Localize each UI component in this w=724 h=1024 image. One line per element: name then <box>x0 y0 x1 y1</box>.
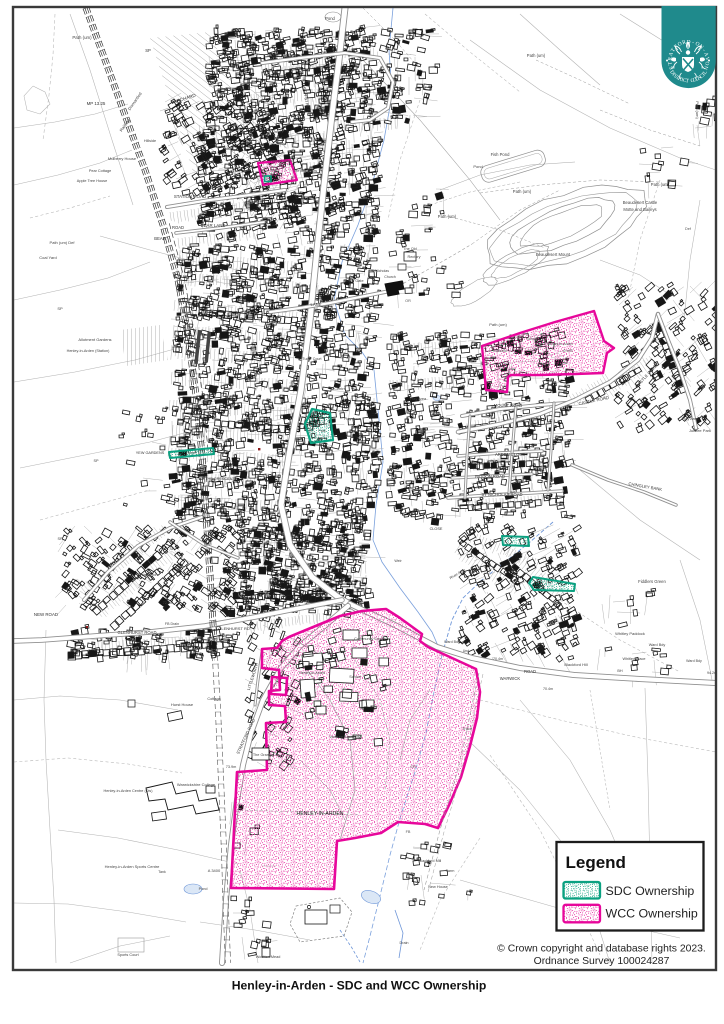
svg-text:SP: SP <box>145 48 151 53</box>
svg-text:Centre: Centre <box>334 387 345 391</box>
svg-text:Play Area: Play Area <box>681 416 699 421</box>
svg-text:Pond: Pond <box>199 887 208 891</box>
svg-text:ST NICHOLAS ROAD: ST NICHOLAS ROAD <box>481 492 522 497</box>
svg-text:BEAR LANE: BEAR LANE <box>201 223 226 228</box>
svg-text:Henley-in-Arden: Henley-in-Arden <box>547 342 572 346</box>
svg-text:A 3400: A 3400 <box>208 868 221 873</box>
svg-text:School: School <box>526 337 538 341</box>
svg-text:FB: FB <box>406 830 411 834</box>
svg-text:Whitley Place: Whitley Place <box>622 657 645 661</box>
svg-text:Ward Bdy: Ward Bdy <box>686 659 702 663</box>
svg-text:Path (um) Def: Path (um) Def <box>50 240 76 245</box>
svg-text:Cottage: Cottage <box>207 697 220 701</box>
svg-text:ROAD: ROAD <box>172 225 184 230</box>
svg-text:© Crown copyright and databas: © Crown copyright and database rights 20… <box>497 944 706 955</box>
svg-text:Legend: Legend <box>566 853 626 872</box>
svg-text:Community Centre: Community Centre <box>354 637 386 641</box>
svg-text:Track: Track <box>462 726 472 731</box>
svg-text:Park: Park <box>318 429 326 433</box>
svg-text:Def: Def <box>307 241 314 245</box>
svg-text:Farm: Farm <box>446 869 455 873</box>
svg-text:NEW ROAD: NEW ROAD <box>34 612 58 617</box>
svg-text:1.22m FF: 1.22m FF <box>268 130 285 134</box>
svg-text:70.4m: 70.4m <box>543 687 553 691</box>
svg-text:73.9m: 73.9m <box>226 765 237 769</box>
svg-text:Path (um): Path (um) <box>438 214 457 219</box>
svg-text:Blackford Mill: Blackford Mill <box>419 859 442 863</box>
svg-text:BH: BH <box>617 669 623 673</box>
svg-text:Jubilee Park: Jubilee Park <box>689 428 711 433</box>
svg-text:SP: SP <box>57 306 63 311</box>
svg-text:STATION ROAD: STATION ROAD <box>174 194 206 199</box>
svg-text:SP: SP <box>57 537 63 541</box>
svg-text:The Bungalow: The Bungalow <box>293 169 318 173</box>
svg-text:CR: CR <box>410 764 416 769</box>
svg-text:Primary School: Primary School <box>270 159 295 163</box>
svg-text:Allotment Gardens: Allotment Gardens <box>78 337 111 342</box>
svg-text:Drain: Drain <box>399 941 408 945</box>
svg-text:Wootton Mead: Wootton Mead <box>256 955 281 959</box>
svg-text:Play Area: Play Area <box>410 397 427 401</box>
svg-text:Play Area: Play Area <box>344 417 361 421</box>
svg-text:Path (um): Path (um) <box>695 101 700 119</box>
svg-text:Church: Church <box>384 275 396 279</box>
svg-text:GLENHURST RD: GLENHURST RD <box>218 626 250 631</box>
svg-text:ROSE AVENUE: ROSE AVENUE <box>267 53 298 58</box>
svg-text:Lych Gate: Lych Gate <box>346 279 363 283</box>
svg-text:Motte and Baileys: Motte and Baileys <box>623 207 656 212</box>
svg-text:Fish Pond: Fish Pond <box>491 152 511 157</box>
svg-text:Brook End: Brook End <box>138 572 157 577</box>
svg-text:THE CRESCENT: THE CRESCENT <box>205 477 235 481</box>
svg-text:Tank: Tank <box>158 870 166 874</box>
svg-text:Beaudesert Mount: Beaudesert Mount <box>536 252 571 257</box>
svg-text:Henley-in-Arden - SDC and WCC: Henley-in-Arden - SDC and WCC Ownership <box>232 979 487 993</box>
svg-text:Blackford Hill: Blackford Hill <box>564 662 587 667</box>
svg-text:WARWICK: WARWICK <box>500 676 521 681</box>
svg-text:LANE: LANE <box>311 302 322 307</box>
svg-text:OR: OR <box>405 299 411 303</box>
svg-text:70.4m: 70.4m <box>493 657 503 661</box>
svg-text:RIDDON ROAD: RIDDON ROAD <box>475 474 505 479</box>
svg-text:Car: Car <box>321 422 328 426</box>
svg-text:Henley-in-Arden: Henley-in-Arden <box>299 671 325 675</box>
svg-text:WCC Ownership: WCC Ownership <box>606 907 698 921</box>
svg-text:MOUNT ROAD: MOUNT ROAD <box>494 403 523 408</box>
svg-text:Warwickshire College: Warwickshire College <box>177 782 216 787</box>
svg-text:Def: Def <box>685 227 692 231</box>
svg-text:SP: SP <box>169 547 175 551</box>
svg-text:BEAR: BEAR <box>154 236 165 241</box>
svg-text:Ordnance Survey 100024287: Ordnance Survey 100024287 <box>534 956 670 967</box>
svg-text:Hillside: Hillside <box>144 139 156 143</box>
svg-text:Henley-in-Arden (Station): Henley-in-Arden (Station) <box>67 349 111 353</box>
svg-text:Tudor Court: Tudor Court <box>302 357 321 361</box>
svg-text:Beaudesert Castle: Beaudesert Castle <box>623 200 658 205</box>
svg-text:School: School <box>349 675 361 679</box>
svg-text:Apple Tree House: Apple Tree House <box>77 179 107 183</box>
svg-text:Venture Academy: Venture Academy <box>329 734 360 739</box>
svg-text:Path (um): Path (um) <box>489 322 507 327</box>
svg-text:Henley-in-Arden Centre (Dis): Henley-in-Arden Centre (Dis) <box>104 789 154 793</box>
svg-text:Weir: Weir <box>394 559 402 563</box>
svg-text:CLOSE: CLOSE <box>430 527 443 531</box>
svg-text:Path (um): Path (um) <box>651 182 670 187</box>
svg-text:Mulberry House: Mulberry House <box>108 156 137 161</box>
svg-text:Fiddlers Green: Fiddlers Green <box>638 579 666 584</box>
svg-text:St Nicholas: St Nicholas <box>371 269 389 273</box>
svg-text:The Grange: The Grange <box>253 753 273 757</box>
svg-text:Path (um): Path (um) <box>72 35 92 40</box>
svg-text:Rectory: Rectory <box>407 255 420 259</box>
svg-text:Ward Bdy: Ward Bdy <box>444 640 460 644</box>
svg-text:Pond: Pond <box>325 16 335 21</box>
svg-text:Whitley Paddock: Whitley Paddock <box>615 631 645 636</box>
svg-text:Path (um): Path (um) <box>527 53 546 58</box>
svg-text:SDC Ownership: SDC Ownership <box>606 884 695 898</box>
svg-text:SP: SP <box>93 459 99 463</box>
svg-text:Sports Court: Sports Court <box>117 953 139 957</box>
svg-text:The Old: The Old <box>403 247 417 251</box>
svg-text:Hurst House: Hurst House <box>171 702 194 707</box>
svg-text:New House: New House <box>428 885 448 889</box>
svg-text:YEW GARDENS: YEW GARDENS <box>136 451 165 455</box>
svg-text:C of E: C of E <box>563 349 573 353</box>
svg-text:Und: Und <box>463 649 470 653</box>
svg-text:HENLEY-IN-ARDEN: HENLEY-IN-ARDEN <box>296 811 343 817</box>
svg-text:ARDEN CLOSE: ARDEN CLOSE <box>495 452 525 457</box>
svg-text:Pond: Pond <box>336 409 344 413</box>
svg-text:GLENHURST ROAD: GLENHURST ROAD <box>117 630 156 635</box>
svg-text:Coal Yard: Coal Yard <box>39 255 56 260</box>
svg-text:Path (um): Path (um) <box>513 189 532 194</box>
svg-text:Henley-in-Arden Sports Centre: Henley-in-Arden Sports Centre <box>105 864 160 869</box>
svg-text:72.6m: 72.6m <box>163 601 174 605</box>
svg-text:ROAD: ROAD <box>524 669 536 674</box>
svg-text:Pond: Pond <box>473 164 482 169</box>
svg-text:MP 13.25: MP 13.25 <box>87 101 106 106</box>
svg-text:Catholic: Catholic <box>493 349 507 353</box>
svg-text:FB Drain: FB Drain <box>165 622 179 626</box>
svg-text:Ward Bdy: Ward Bdy <box>649 643 666 647</box>
svg-text:Pear Cottage: Pear Cottage <box>89 169 111 173</box>
